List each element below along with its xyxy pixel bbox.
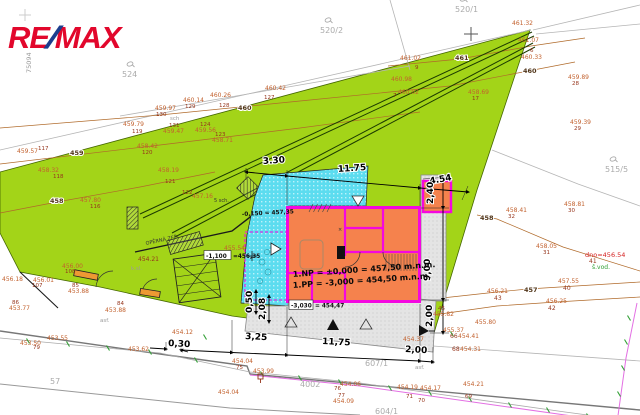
spot-point-id: 123 (215, 132, 226, 138)
dimension-label: 2,00 (425, 305, 435, 327)
spot-height: 459.89 (568, 74, 589, 81)
spot-point-id: 43 (494, 295, 502, 302)
spot-height: 456.18 (2, 276, 23, 283)
annotation-text: × (338, 227, 342, 233)
spot-height: 454.19 (397, 384, 418, 391)
spot-point-id: 29 (574, 126, 581, 132)
spot-point-id: 76 (334, 386, 341, 392)
parcel-number: 520/1 (455, 5, 478, 14)
spot-height: 455.54 (224, 245, 245, 252)
dimension-label: 3.30 (263, 155, 286, 167)
spot-height: 454.17 (420, 385, 441, 392)
annotation-text: 5 sch. (214, 198, 229, 204)
spot-point-id: 69 (465, 394, 472, 400)
spot-point-id: 116 (90, 204, 101, 210)
parcel-symbol-icon (609, 156, 617, 162)
spot-height: 458.41 (506, 207, 527, 214)
contour-label: 457 (524, 286, 538, 294)
spot-point-id: 75 (236, 365, 243, 371)
parcel-number: 57 (50, 377, 60, 386)
parcel-number: 520/2 (320, 26, 343, 35)
spot-height: 454.12 (172, 329, 193, 336)
spot-point-id: 129 (185, 104, 196, 110)
dimension-label: 2,08 (258, 298, 268, 320)
spot-height: 453.77 (9, 305, 30, 312)
dimension-label: 3,25 (245, 332, 268, 343)
parcel-number: 4002 (300, 380, 320, 389)
parcel-number: 515/5 (605, 165, 628, 174)
spot-point-id: 85 (72, 283, 79, 289)
spot-height: 461.07 (518, 37, 539, 44)
cadastral-site-plan: 461.32461.07460.336461.029460.98460.0274… (0, 0, 640, 415)
spot-height: 453.99 (253, 368, 274, 375)
spot-height: 460.42 (265, 85, 286, 92)
base-elevation-note: = 454,47 (315, 304, 344, 310)
dimension-label: 11.75 (338, 163, 367, 175)
spot-point-id: 128 (219, 103, 230, 109)
parcel-number: 524 (122, 70, 137, 79)
spot-height: 458.71 (212, 137, 233, 144)
spot-height: 460.98 (391, 76, 412, 83)
spot-height: 459.56 (195, 127, 216, 134)
spot-point-id: 6 (530, 48, 534, 54)
spot-height: 453.88 (105, 307, 126, 314)
base-elevation-note: -3,030 (291, 304, 312, 310)
spot-height: 454.37 (403, 336, 424, 343)
spot-point-id: 42 (548, 305, 556, 312)
spot-point-id: 120 (142, 150, 153, 156)
spot-height: 453.55 (47, 335, 68, 342)
spot-height: 459.47 (163, 128, 184, 135)
grid-cross-icon (464, 27, 478, 41)
spot-point-id: 28 (572, 81, 579, 87)
spot-height: 457.80 (80, 197, 101, 204)
spot-height: 458.81 (564, 201, 585, 208)
spot-height: 461.32 (512, 20, 533, 27)
spot-height: 459.79 (123, 121, 144, 128)
annotation-text: asf. (100, 318, 110, 324)
spot-height: 455.82 (433, 311, 454, 318)
site-plan-page: 461.32461.07460.336461.029460.98460.0274… (0, 0, 640, 415)
spot-height: 458.42 (137, 143, 158, 150)
utility-magenta-line-right (616, 303, 637, 415)
annotation-text: k.sl. (131, 266, 142, 272)
spot-height: 453.88 (68, 288, 89, 295)
chimney (337, 246, 345, 259)
spot-point-id: 107 (32, 283, 43, 289)
wall-hatch-strip (127, 207, 138, 229)
contour-label: 458 (50, 197, 64, 205)
curb-line (0, 331, 640, 410)
spot-point-id: 84 (117, 301, 124, 307)
spot-point-id: 9 (415, 65, 419, 71)
spot-point-id: 7 (393, 93, 397, 99)
spot-height: 456.25 (546, 298, 567, 305)
spot-point-id: 70 (418, 398, 425, 404)
spot-height: 458.19 (158, 167, 179, 174)
spot-height: 454.41 (458, 333, 479, 340)
spot-point-id: 17 (472, 96, 479, 102)
parcel-symbol-icon (324, 17, 332, 23)
spot-point-id: 117 (38, 146, 49, 152)
spot-height: 456.21 (487, 288, 508, 295)
spot-height: 458.05 (536, 243, 557, 250)
dimension-label: 2,40 (426, 182, 436, 204)
spot-point-id: 68 (452, 346, 460, 353)
dimension-label: 2,00 (405, 345, 428, 356)
spot-height: 454.04 (232, 358, 253, 365)
spot-height: 454.31 (460, 346, 481, 353)
contour-label: 458 (480, 214, 494, 222)
annotation-text: 75094 (25, 52, 33, 73)
spot-height: 459.97 (155, 105, 176, 112)
spot-point-id: 108 (65, 269, 76, 275)
spot-height: 459.57 (17, 148, 38, 155)
logo-re: RE (8, 20, 49, 55)
spot-point-id: 45 (438, 306, 445, 312)
spot-height: 460.26 (210, 92, 231, 99)
spot-point-id: 71 (406, 394, 413, 400)
spot-height: 454.21 (138, 256, 159, 263)
parcel-symbol-icon (459, 0, 467, 2)
spot-height: 455.80 (475, 319, 496, 326)
terrace-elevation-note: -1,100 (206, 254, 227, 260)
spot-height: 457.16 (192, 193, 213, 200)
logo-max: MAX (55, 20, 121, 55)
spot-height: 457.55 (558, 278, 579, 285)
spot-height: 454.09 (333, 398, 354, 405)
spot-point-id: 119 (132, 129, 143, 135)
spot-height: 454.21 (463, 381, 484, 388)
annotation-text: š.vod. (592, 264, 610, 271)
terrace-elevation-note: =456,35 (233, 254, 260, 260)
spot-point-id: 124 (200, 122, 211, 128)
spot-height: 453.62 (128, 346, 149, 353)
spot-height: 454.06 (340, 381, 361, 388)
parcel-number: 604/1 (375, 407, 398, 415)
spot-height: 454.04 (218, 389, 239, 396)
dimension-label: 0,30 (168, 339, 191, 350)
spot-point-id: 127 (264, 95, 275, 101)
spot-point-id: 30 (568, 208, 575, 214)
spot-point-id: 77 (338, 393, 345, 399)
spot-point-id: 79 (33, 345, 40, 351)
contour-label: 461 (455, 54, 469, 62)
annotation-text: sch (170, 116, 180, 122)
spot-point-id: 121 (165, 179, 176, 185)
contour-label: 460 (238, 104, 252, 112)
spot-point-id: 32 (508, 214, 515, 220)
contour-label: 459 (70, 149, 84, 157)
spot-height: 460.02 (398, 89, 419, 96)
parcel-number: 607/1 (365, 359, 388, 368)
dimension-label: 0,50 (245, 291, 255, 313)
spot-height: 460.14 (183, 97, 204, 104)
spot-point-id: 31 (543, 250, 550, 256)
spot-point-id: 131 (169, 123, 180, 129)
spot-height: 459.39 (570, 119, 591, 126)
spot-height: 458.69 (468, 89, 489, 96)
spot-point-id: 118 (53, 174, 64, 180)
annotation-text: asf. (415, 365, 425, 371)
remax-logo: RE/MAX (8, 22, 121, 53)
spot-point-id: 130 (156, 112, 167, 118)
spot-point-id: 86 (12, 300, 19, 306)
dimension-label: 11,75 (322, 337, 351, 348)
contour-label: 460 (523, 67, 537, 75)
spot-point-id: 40 (563, 285, 571, 292)
parcel-symbol-icon (126, 61, 134, 67)
spot-point-id: 66 (450, 333, 458, 340)
spot-height: 460.33 (521, 54, 542, 61)
spot-height: 458.32 (38, 167, 59, 174)
spot-point-id: 122 (182, 190, 193, 196)
water-line (0, 338, 640, 415)
spot-height: 461.02 (400, 55, 421, 62)
